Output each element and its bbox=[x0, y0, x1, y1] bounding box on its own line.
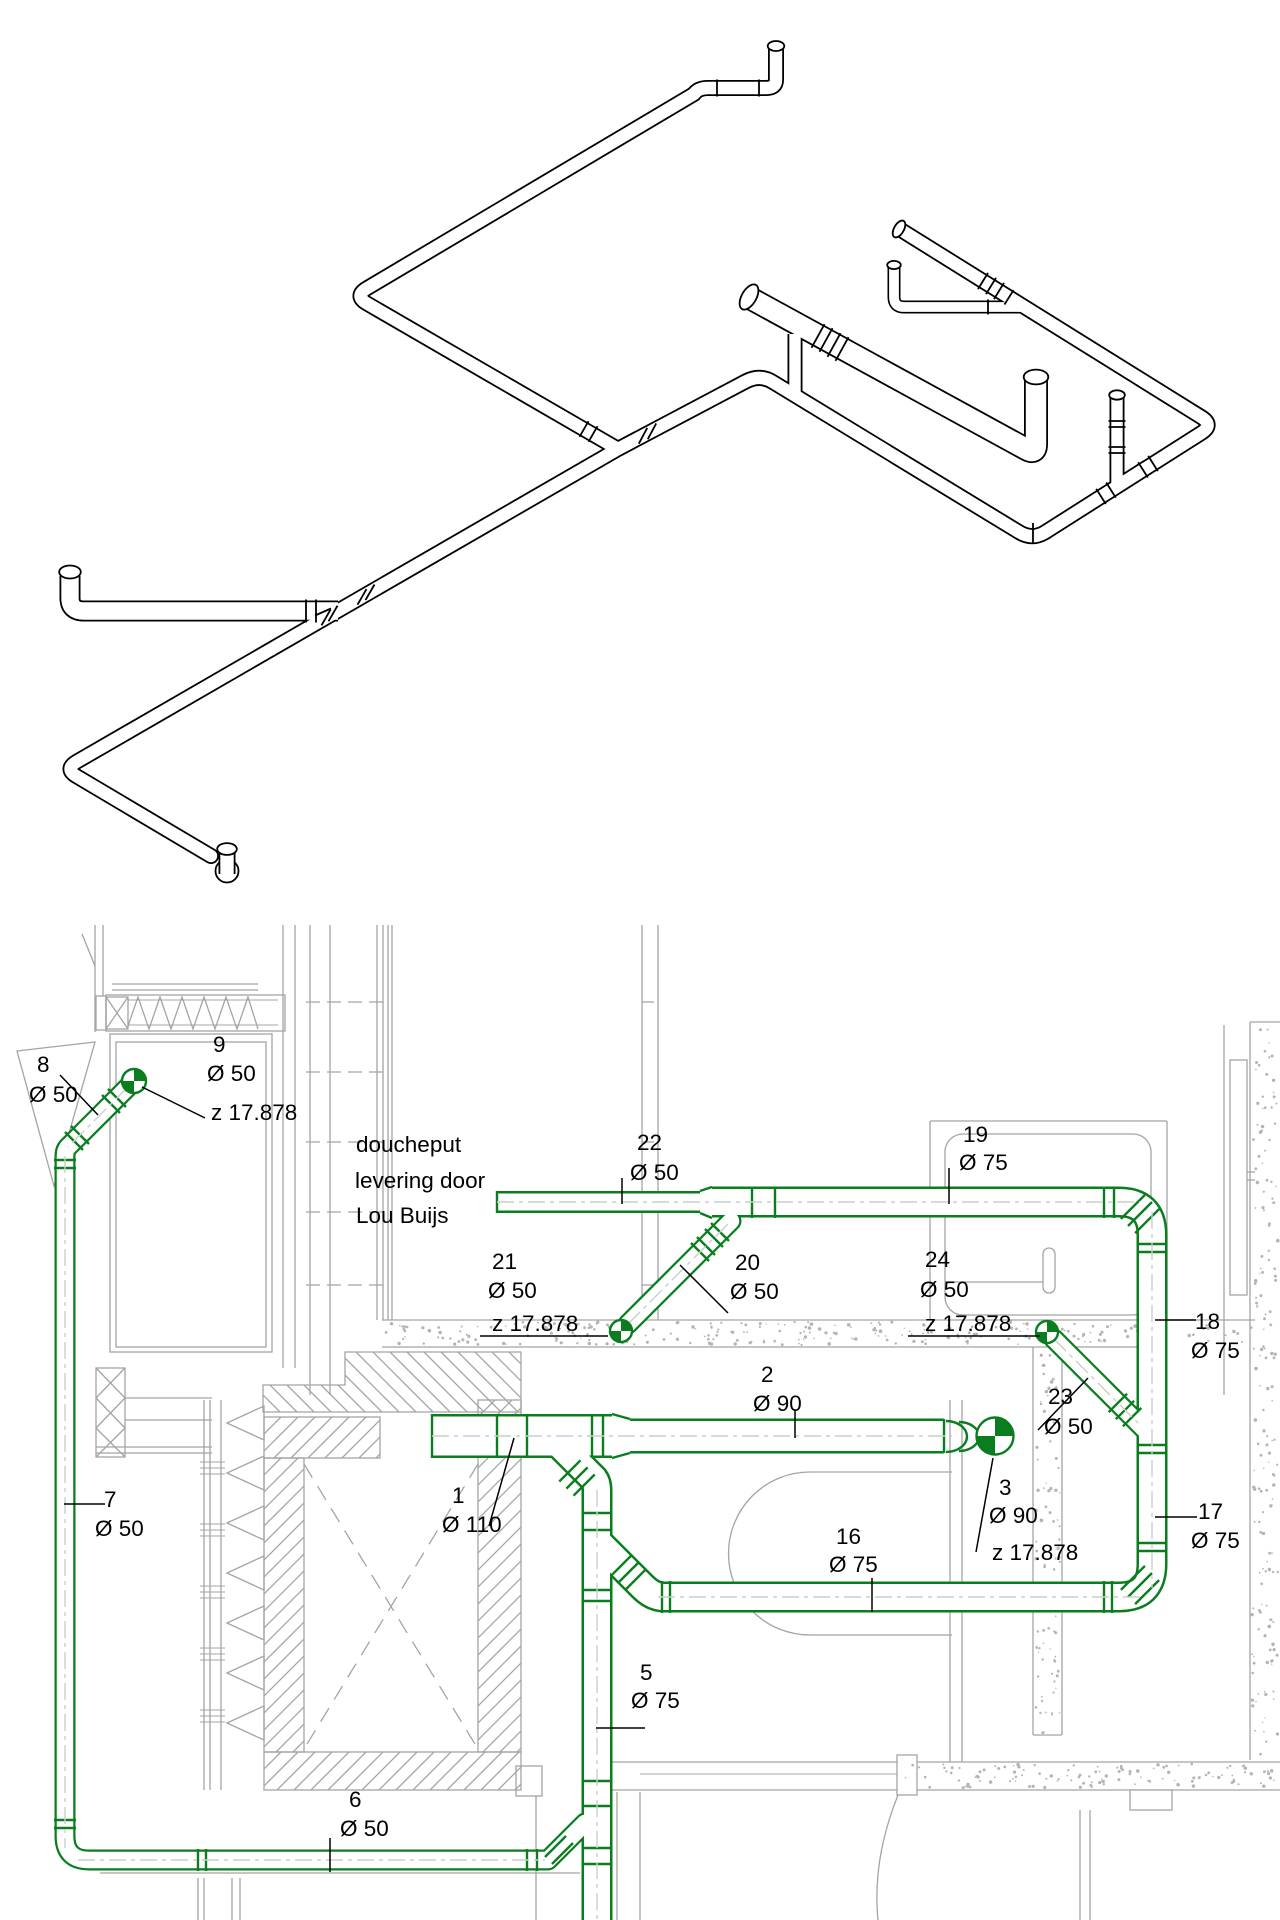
svg-text:24: 24 bbox=[925, 1247, 950, 1272]
svg-text:7: 7 bbox=[104, 1487, 117, 1512]
svg-text:18: 18 bbox=[1195, 1309, 1220, 1334]
svg-text:Ø 50: Ø 50 bbox=[488, 1278, 537, 1303]
svg-text:Ø 75: Ø 75 bbox=[829, 1552, 878, 1577]
svg-text:1: 1 bbox=[452, 1483, 465, 1508]
svg-text:21: 21 bbox=[492, 1249, 517, 1274]
svg-text:20: 20 bbox=[735, 1250, 760, 1275]
svg-text:Ø 50: Ø 50 bbox=[630, 1160, 679, 1185]
svg-text:Ø 50: Ø 50 bbox=[730, 1279, 779, 1304]
svg-text:Ø 75: Ø 75 bbox=[959, 1150, 1008, 1175]
svg-text:Ø 50: Ø 50 bbox=[95, 1516, 144, 1541]
svg-text:16: 16 bbox=[836, 1524, 861, 1549]
svg-text:2: 2 bbox=[761, 1362, 774, 1387]
svg-text:6: 6 bbox=[349, 1787, 362, 1812]
svg-text:Ø 50: Ø 50 bbox=[1044, 1414, 1093, 1439]
svg-text:z 17.878: z 17.878 bbox=[992, 1540, 1078, 1565]
svg-text:17: 17 bbox=[1198, 1499, 1223, 1524]
svg-text:Lou Buijs: Lou Buijs bbox=[356, 1203, 449, 1228]
svg-text:8: 8 bbox=[37, 1052, 50, 1077]
svg-text:levering door: levering door bbox=[355, 1168, 486, 1193]
svg-text:Ø 75: Ø 75 bbox=[1191, 1338, 1240, 1363]
svg-text:Ø 50: Ø 50 bbox=[340, 1816, 389, 1841]
svg-text:Ø 75: Ø 75 bbox=[1191, 1528, 1240, 1553]
svg-text:Ø 50: Ø 50 bbox=[207, 1061, 256, 1086]
svg-text:3: 3 bbox=[999, 1475, 1012, 1500]
svg-text:Ø 90: Ø 90 bbox=[989, 1503, 1038, 1528]
svg-text:z 17.878: z 17.878 bbox=[925, 1311, 1011, 1336]
svg-text:z 17.878: z 17.878 bbox=[211, 1100, 297, 1125]
svg-text:9: 9 bbox=[213, 1032, 226, 1057]
svg-text:Ø 75: Ø 75 bbox=[631, 1688, 680, 1713]
svg-text:doucheput: doucheput bbox=[356, 1132, 462, 1157]
svg-text:5: 5 bbox=[640, 1660, 653, 1685]
svg-text:Ø 50: Ø 50 bbox=[920, 1277, 969, 1302]
svg-text:22: 22 bbox=[637, 1130, 662, 1155]
svg-text:z 17.878: z 17.878 bbox=[492, 1311, 578, 1336]
svg-text:19: 19 bbox=[963, 1122, 988, 1147]
